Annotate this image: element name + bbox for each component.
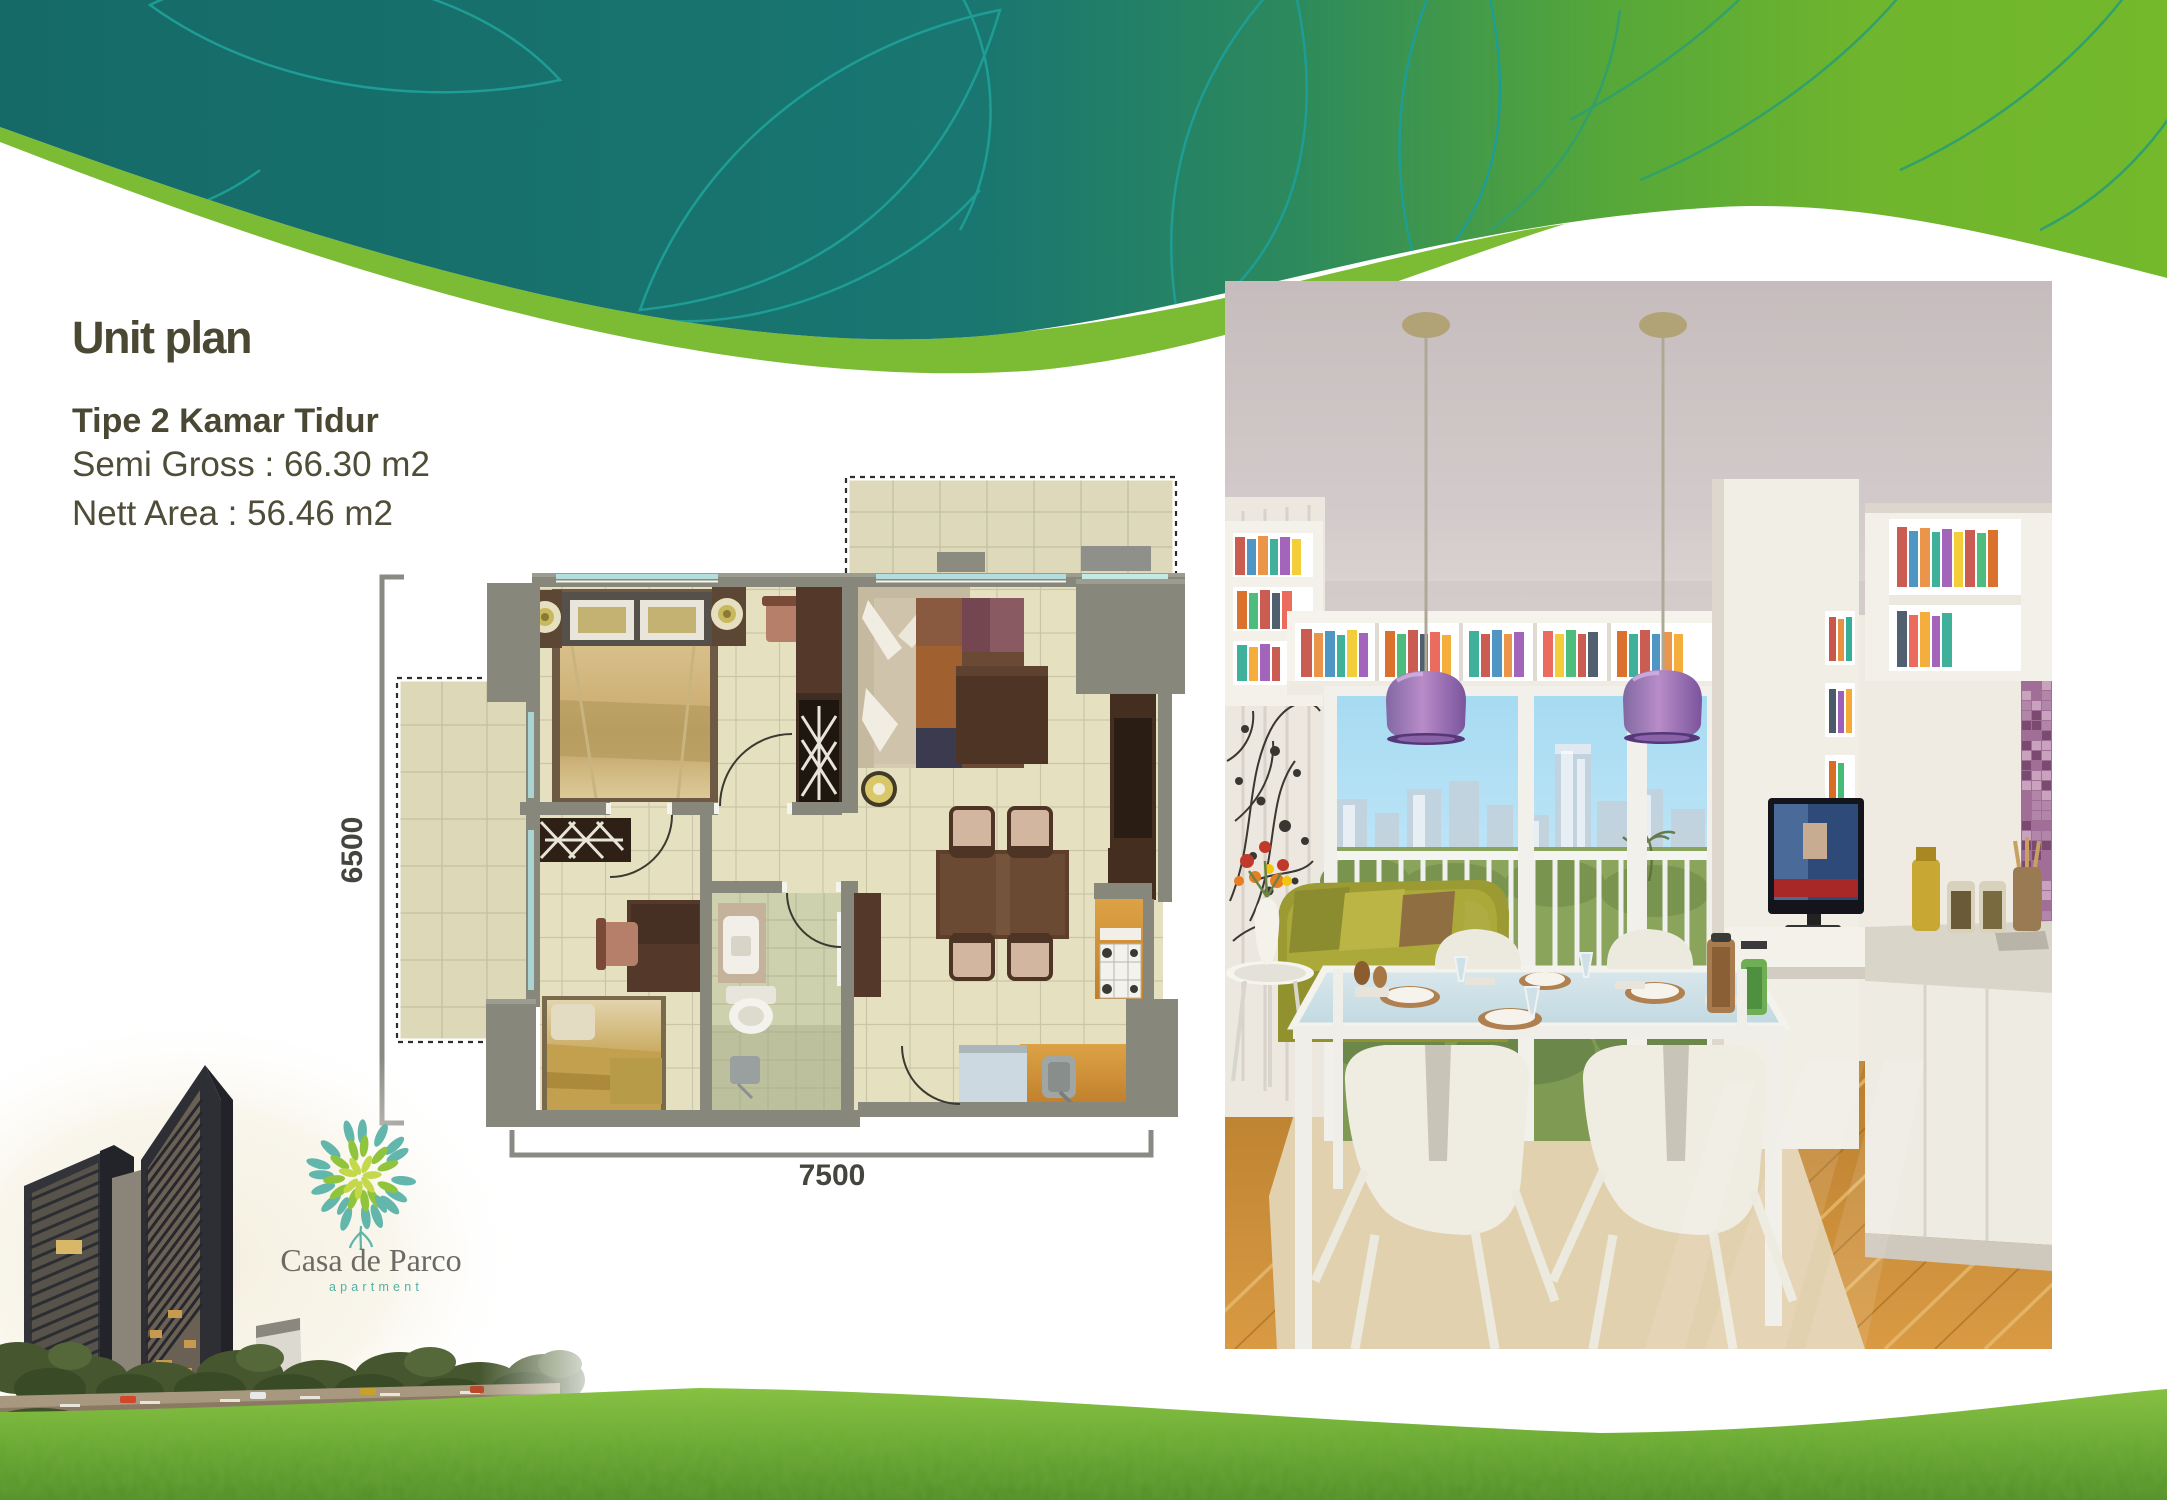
- svg-text:Casa de Parco: Casa de Parco: [280, 1242, 461, 1278]
- svg-text:6500: 6500: [336, 817, 369, 884]
- svg-text:apartment: apartment: [329, 1280, 423, 1294]
